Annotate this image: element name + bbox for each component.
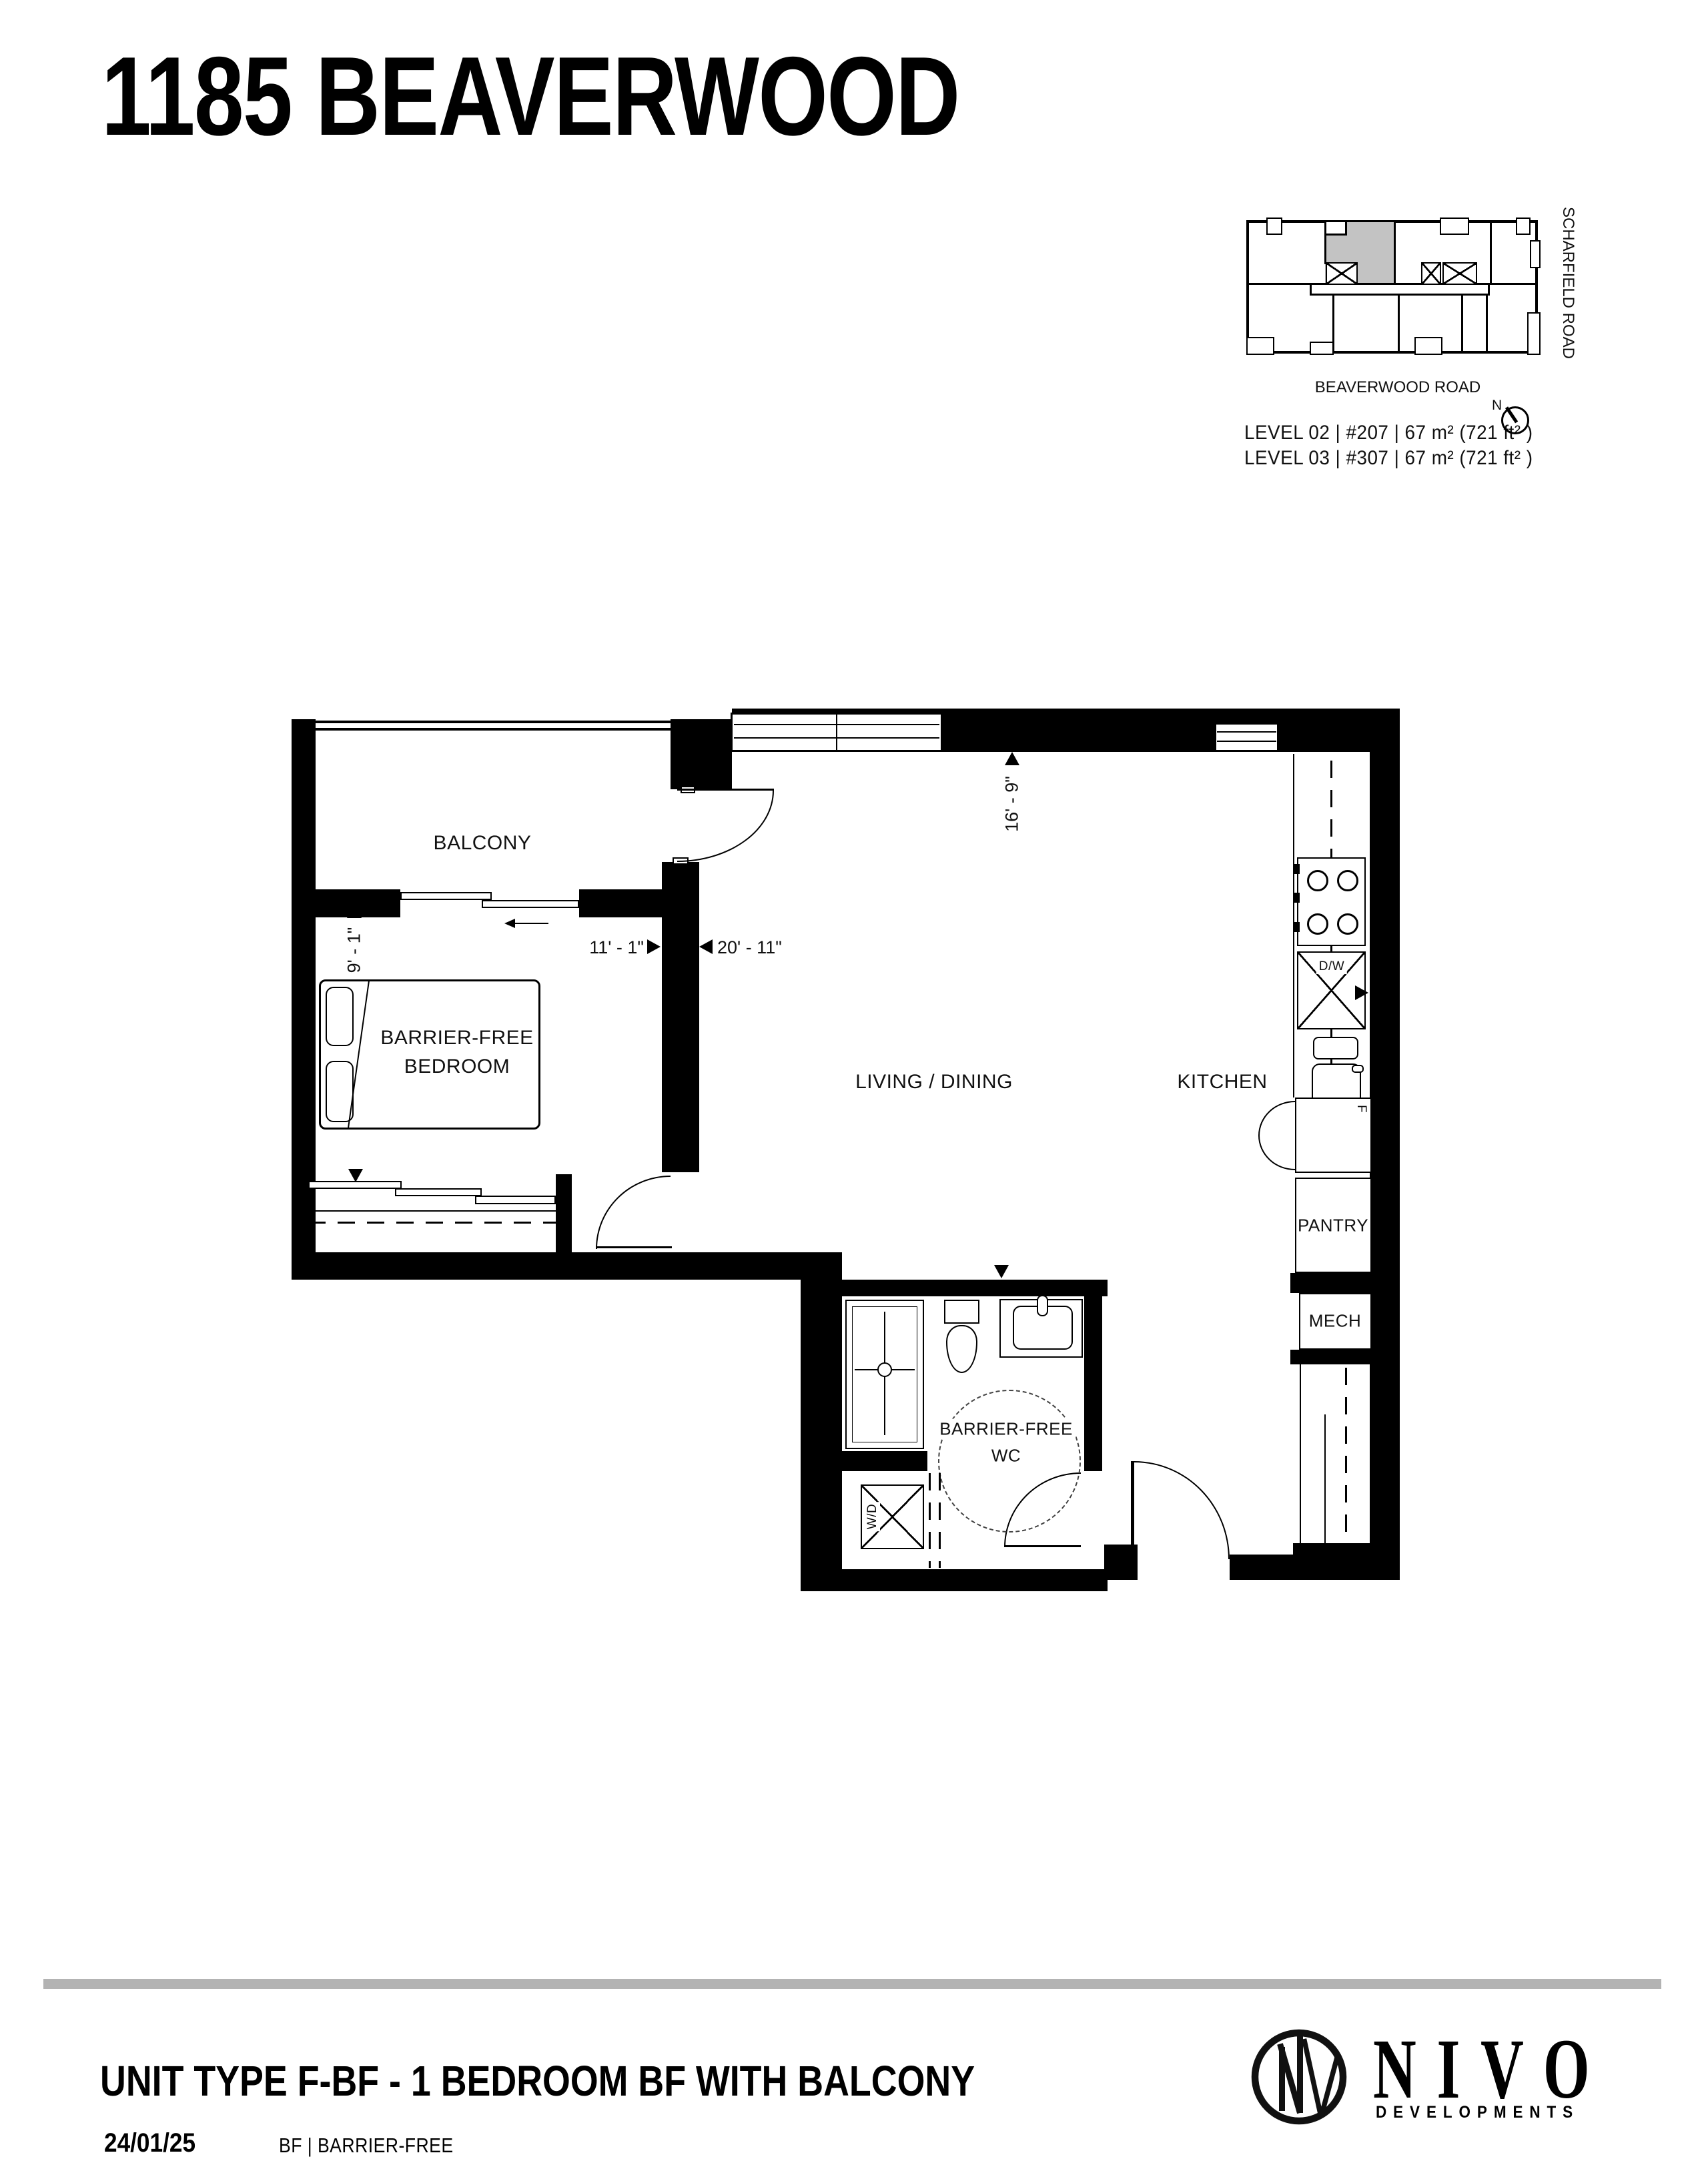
keyplan-unit-notch (1325, 222, 1347, 236)
slide-arrow-icon (504, 919, 515, 928)
wall-bathroom-right (1084, 1280, 1102, 1471)
dimension-arrow-up-icon (1005, 752, 1019, 765)
wall-left-exterior (292, 719, 316, 1280)
keyplan-notch (1527, 312, 1541, 355)
stove (1297, 857, 1366, 946)
keyplan-notch (1246, 337, 1274, 355)
entry-closet-rod (1345, 1368, 1347, 1541)
wc-label-line2: WC (989, 1446, 1023, 1466)
wall-mech-closet-divider (1290, 1350, 1370, 1364)
shower-drain-icon (877, 1362, 892, 1377)
dimension-arrow-up-icon (347, 905, 362, 918)
bf-legend: BF | BARRIER-FREE (279, 2134, 454, 2158)
living-dining-label: LIVING / DINING (855, 1071, 1013, 1094)
keyplan-wall (1398, 294, 1400, 354)
wc-pocket-door (929, 1473, 931, 1568)
north-label: N (1492, 398, 1502, 414)
balcony-label: BALCONY (434, 832, 532, 855)
bedroom-label-line1: BARRIER-FREE (380, 1027, 533, 1049)
dishwasher-label: D/W (1316, 959, 1347, 974)
entry-closet-door (1300, 1364, 1301, 1543)
window-bedroom-panel (400, 892, 492, 900)
dimension-arrow-right-icon (1355, 985, 1368, 1000)
fridge-label: F (1354, 1105, 1368, 1113)
wall-bathroom-left (801, 1280, 842, 1591)
street-label-beaverwood: BEAVERWOOD ROAD (1315, 378, 1480, 397)
stove-burner-icon (1337, 870, 1358, 891)
keyplan-wall (1486, 294, 1488, 354)
wall-pantry-mech-divider (1290, 1273, 1370, 1293)
toilet-bowl (946, 1325, 977, 1373)
stove-knob-icon (1293, 922, 1300, 932)
keyplan-notch (1516, 217, 1531, 235)
keyplan-wall (1394, 220, 1396, 284)
bedroom-door-swing (596, 1176, 671, 1249)
wall-balcony-pier (671, 719, 732, 789)
wall-closet-bottom (1293, 1543, 1370, 1565)
keyplan-corridor-line (1246, 283, 1538, 285)
dimension-living-width: 16' - 9" (1002, 776, 1023, 832)
unit-type-title: UNIT TYPE F-BF - 1 BEDROOM BF WITH BALCO… (100, 2056, 975, 2106)
keyplan-notch (1414, 337, 1442, 355)
dimension-arrow-down-icon (348, 1169, 363, 1182)
closet-shelf-line (308, 1210, 556, 1212)
wc-label-line1: BARRIER-FREE (937, 1419, 1076, 1440)
dimension-arrow-right-icon (647, 939, 661, 954)
mech-label: MECH (1309, 1311, 1362, 1332)
closet-slider-panel (475, 1196, 556, 1204)
street-label-scharfield: SCHARFIELD ROAD (1559, 207, 1577, 359)
wall-bathroom-bottom (801, 1569, 1108, 1591)
wall-closet-column (556, 1174, 572, 1252)
keyplan-notch (1266, 217, 1282, 235)
level-02-info: LEVEL 02 | #207 | 67 m² (721 ft² ) (1244, 422, 1533, 444)
wall-bedroom-balcony (292, 889, 400, 917)
nivo-logo-icon (1249, 2027, 1349, 2127)
stove-knob-icon (1293, 893, 1300, 903)
keyplan-wall (1488, 283, 1490, 295)
kitchen-sink-drainer (1313, 1037, 1358, 1059)
closet-slider-panel (395, 1188, 482, 1196)
keyplan-core-icon (1442, 262, 1477, 285)
window-mullion (836, 715, 837, 750)
balcony-railing (316, 728, 672, 731)
keyplan-wall (1490, 220, 1492, 284)
keyplan-notch (1310, 342, 1334, 355)
keyplan-wall (1310, 283, 1312, 295)
dimension-arrow-down-icon (994, 1265, 1009, 1278)
slide-arrow-line (514, 923, 548, 924)
entry-door-swing (1134, 1461, 1230, 1559)
window-frame-line (1217, 741, 1276, 742)
wall-bathroom-divider (842, 1451, 927, 1471)
balcony-door-swing (677, 791, 774, 862)
kitchen-label: KITCHEN (1177, 1071, 1267, 1094)
pantry-label: PANTRY (1298, 1216, 1368, 1236)
stove-burner-icon (1337, 913, 1358, 935)
stove-knob-icon (1293, 864, 1300, 874)
pillow-icon (326, 987, 354, 1046)
keyplan-notch (1440, 217, 1469, 235)
entry-closet-door (1324, 1414, 1326, 1543)
wall-bedroom-balcony (579, 889, 662, 917)
dimension-bedroom-length: 11' - 1" (564, 937, 644, 958)
closet-rod-line (308, 1222, 556, 1224)
vanity-faucet-icon (1037, 1295, 1048, 1316)
window-kitchen (1214, 723, 1279, 752)
dimension-arrow-left-icon (699, 939, 713, 954)
wc-pocket-door (939, 1473, 941, 1568)
keyplan-core-icon (1326, 262, 1358, 285)
window-frame-line (1217, 731, 1276, 733)
fridge-door-swing (1258, 1101, 1295, 1136)
stove-burner-icon (1307, 913, 1328, 935)
wall-bedroom-living-stub (662, 862, 699, 1172)
toilet-tank (944, 1300, 979, 1324)
plan-date: 24/01/25 (104, 2128, 195, 2158)
washer-dryer-label: W/D (865, 1502, 880, 1531)
keyplan-core-icon (1421, 262, 1441, 285)
brand-subtitle: DEVELOPMENTS (1376, 2103, 1579, 2122)
footer-divider (43, 1979, 1661, 1989)
wall-bedroom-bottom (292, 1252, 842, 1280)
dimension-bedroom-width: 9' - 1" (344, 927, 365, 973)
bedroom-label-line2: BEDROOM (404, 1055, 510, 1078)
wall-bathroom-top (801, 1280, 1108, 1296)
stove-burner-icon (1307, 870, 1328, 891)
level-03-info: LEVEL 03 | #307 | 67 m² (721 ft² ) (1244, 447, 1533, 470)
page-title: 1185 BEAVERWOOD (101, 32, 959, 161)
balcony-railing (316, 721, 672, 723)
keyplan-wall (1324, 220, 1326, 264)
keyplan-notch (1530, 240, 1541, 268)
wall-right-exterior (1370, 709, 1400, 1565)
keyplan-wall (1461, 294, 1463, 354)
window-bedroom-panel (482, 900, 579, 908)
floorplan-page: 1185 BEAVERWOOD SCHARFIELD ROAD BEA (0, 0, 1708, 2175)
dimension-living-length: 20' - 11" (717, 937, 782, 958)
fridge-door-swing (1258, 1136, 1295, 1170)
kitchen-faucet-icon (1352, 1065, 1364, 1073)
